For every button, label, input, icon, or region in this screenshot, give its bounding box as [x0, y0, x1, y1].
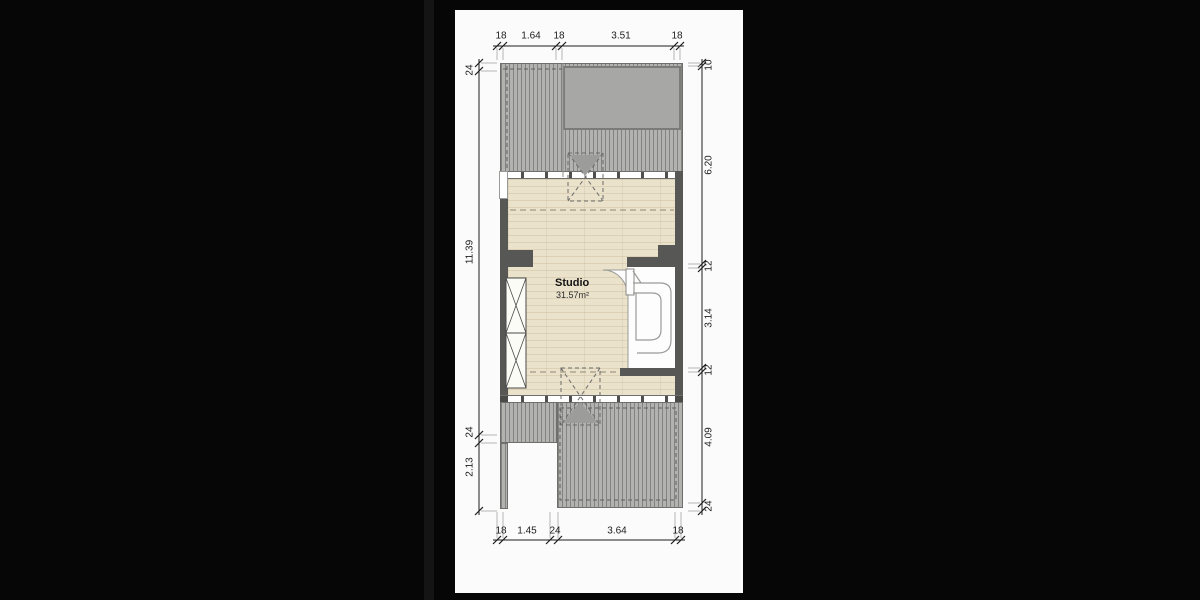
dim-label-bottom-1: 1.45 — [517, 526, 536, 537]
dim-label-right-5: 4.09 — [704, 427, 715, 446]
room-name-label: Studio — [555, 277, 589, 289]
room-area-label: 31.57m² — [556, 290, 589, 300]
dim-label-top-4: 18 — [671, 31, 682, 42]
dim-label-bottom-4: 18 — [672, 526, 683, 537]
dim-label-left-2: 24 — [465, 426, 476, 437]
wall-stub-left — [500, 250, 533, 267]
deck-bottom-right — [557, 402, 683, 508]
wall-left — [500, 199, 508, 395]
floor-plan-page: Studio 31.57m² 18 1.64 18 3.51 18 18 1.4… — [0, 0, 1200, 600]
dim-label-top-3: 3.51 — [611, 31, 630, 42]
deck-bottom-strip — [500, 443, 508, 509]
dim-label-right-2: 12 — [704, 260, 715, 271]
left-corner-window — [499, 171, 508, 199]
deck-bottom-left — [500, 402, 557, 443]
dim-label-right-0: 10 — [704, 59, 715, 70]
stair-shaft-wall-top — [627, 257, 683, 267]
dim-label-left-3: 2.13 — [465, 457, 476, 476]
dim-label-top-0: 18 — [495, 31, 506, 42]
dim-label-bottom-0: 18 — [495, 526, 506, 537]
roof-overhang — [563, 66, 681, 130]
glass-facade-top — [500, 171, 683, 179]
dim-label-right-4: 12 — [704, 364, 715, 375]
wall-right — [675, 171, 683, 395]
dim-label-left-1: 11.39 — [465, 240, 476, 264]
dim-label-left-0: 24 — [465, 64, 476, 75]
dim-label-bottom-2: 24 — [549, 526, 560, 537]
stair-shaft — [628, 267, 675, 368]
dim-label-top-2: 18 — [553, 31, 564, 42]
dim-label-bottom-3: 3.64 — [607, 526, 626, 537]
dim-label-right-3: 3.14 — [704, 308, 715, 327]
dim-label-right-6: 24 — [704, 500, 715, 511]
screen-edge-strip — [424, 0, 434, 600]
dim-label-right-1: 6.20 — [704, 155, 715, 174]
dim-label-top-1: 1.64 — [521, 31, 540, 42]
stair-shaft-wall-bottom — [620, 368, 683, 376]
